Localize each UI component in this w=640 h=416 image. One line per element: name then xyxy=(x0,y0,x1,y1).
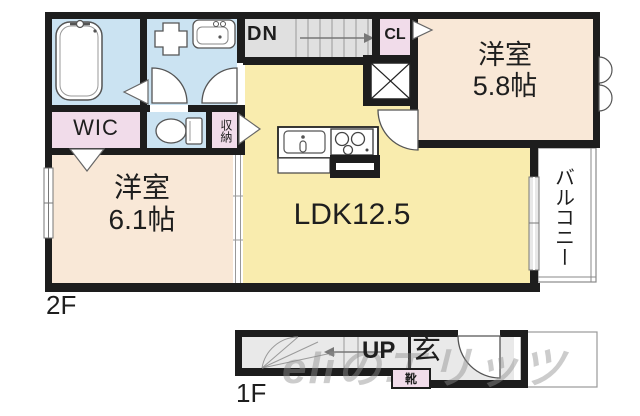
balcony-label: バルコニー xyxy=(549,156,575,278)
floorplan-image: eliのエリッツ DN CL WIC 収納 洋室 5.8帖 洋室 6.1帖 LD… xyxy=(0,0,640,416)
stairs-up-label: UP xyxy=(362,337,395,365)
shoes-label: 靴 xyxy=(405,370,417,387)
washbasin-icon xyxy=(193,20,235,48)
shoes-cabinet: 靴 xyxy=(391,368,431,389)
watermark-latin: eli xyxy=(282,344,337,393)
stairs-dn-label: DN xyxy=(247,23,278,46)
floor2-label: 2F xyxy=(46,291,76,321)
western-room-61-label: 洋室 6.1帖 xyxy=(56,172,228,236)
room-61-name: 洋室 xyxy=(56,172,228,204)
western-room-58-label: 洋室 5.8帖 xyxy=(425,40,585,102)
wic-label: WIC xyxy=(56,115,136,140)
room-61-size: 6.1帖 xyxy=(56,204,228,236)
ldk-label: LDK12.5 xyxy=(252,198,452,233)
closet-cl-label: CL xyxy=(380,26,410,44)
toilet-icon xyxy=(156,118,202,144)
room-58-size: 5.8帖 xyxy=(425,71,585,102)
window-balcony-door xyxy=(529,177,539,270)
window-casement-east xyxy=(599,57,612,111)
room-58-name: 洋室 xyxy=(425,40,585,71)
window-west-wall xyxy=(44,168,53,238)
sliding-door-partition xyxy=(233,155,243,283)
bathtub-icon xyxy=(56,21,102,101)
kitchen-counter xyxy=(278,127,380,178)
floor1-label: 1F xyxy=(236,379,266,409)
void-x-box xyxy=(371,63,410,99)
entrance-label: 玄 xyxy=(412,334,441,367)
storage-label: 収納 xyxy=(213,112,237,150)
